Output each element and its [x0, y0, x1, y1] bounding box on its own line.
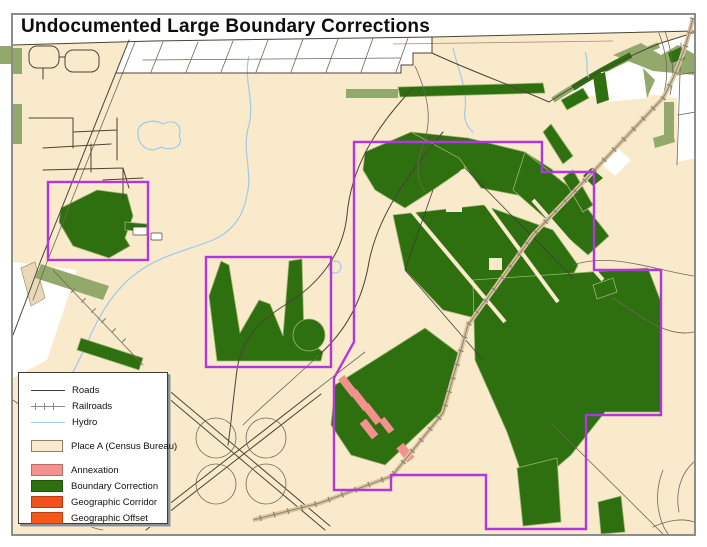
- legend-item: Annexation: [31, 462, 167, 478]
- legend-label: Roads: [72, 385, 99, 396]
- legend-line-symbol: [31, 418, 65, 427]
- map-frame: Undocumented Large Boundary Corrections: [11, 13, 696, 536]
- legend-item: Geographic Corridor: [31, 494, 167, 510]
- legend-label: Geographic Offset: [71, 513, 148, 524]
- legend-item: Boundary Correction: [31, 478, 167, 494]
- map-canvas: RoadsRailroadsHydroPlace A (Census Burea…: [13, 15, 694, 534]
- map-bleed-artifact: [0, 46, 11, 64]
- legend-item: Hydro: [31, 414, 167, 430]
- legend-swatch: [31, 496, 63, 508]
- legend-label: Hydro: [72, 417, 97, 428]
- legend-item: Geographic Offset: [31, 510, 167, 526]
- legend-swatch: [31, 464, 63, 476]
- legend-item: Place A (Census Bureau): [31, 438, 167, 454]
- legend-label: Railroads: [72, 401, 112, 412]
- legend: RoadsRailroadsHydroPlace A (Census Burea…: [18, 372, 168, 524]
- legend-line-symbol: [31, 386, 65, 395]
- legend-label: Place A (Census Bureau): [71, 441, 177, 452]
- legend-swatch: [31, 512, 63, 524]
- legend-item: Roads: [31, 382, 167, 398]
- legend-label: Geographic Corridor: [71, 497, 157, 508]
- map-title: Undocumented Large Boundary Corrections: [21, 16, 430, 38]
- legend-label: Annexation: [71, 465, 119, 476]
- legend-label: Boundary Correction: [71, 481, 158, 492]
- legend-swatch: [31, 480, 63, 492]
- legend-items: RoadsRailroadsHydroPlace A (Census Burea…: [31, 382, 167, 526]
- legend-swatch: [31, 440, 63, 452]
- legend-item: Railroads: [31, 398, 167, 414]
- legend-railroad-symbol: [31, 402, 65, 411]
